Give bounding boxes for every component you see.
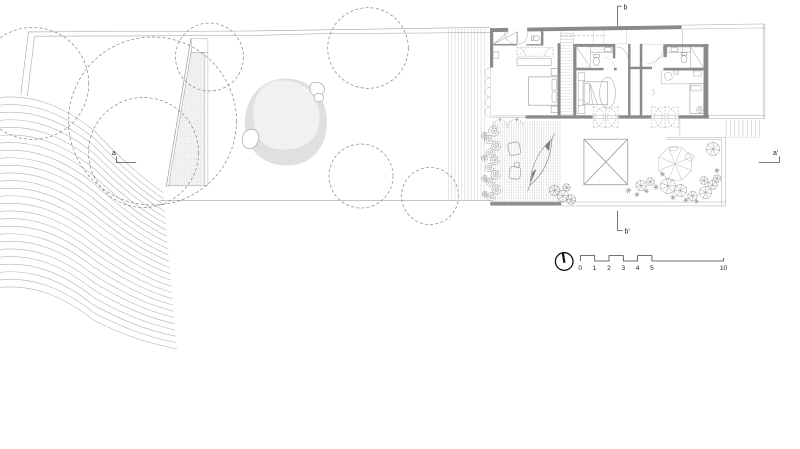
svg-text:10: 10 xyxy=(720,265,728,272)
svg-text:a: a xyxy=(112,150,116,157)
svg-text:4: 4 xyxy=(636,265,640,272)
svg-text:2: 2 xyxy=(607,265,611,272)
svg-text:b': b' xyxy=(625,229,630,236)
svg-text:3: 3 xyxy=(622,265,626,272)
svg-text:0: 0 xyxy=(578,265,582,272)
svg-text:a': a' xyxy=(773,150,778,157)
svg-text:5: 5 xyxy=(650,265,654,272)
svg-text:b: b xyxy=(624,5,628,12)
svg-text:1: 1 xyxy=(593,265,597,272)
